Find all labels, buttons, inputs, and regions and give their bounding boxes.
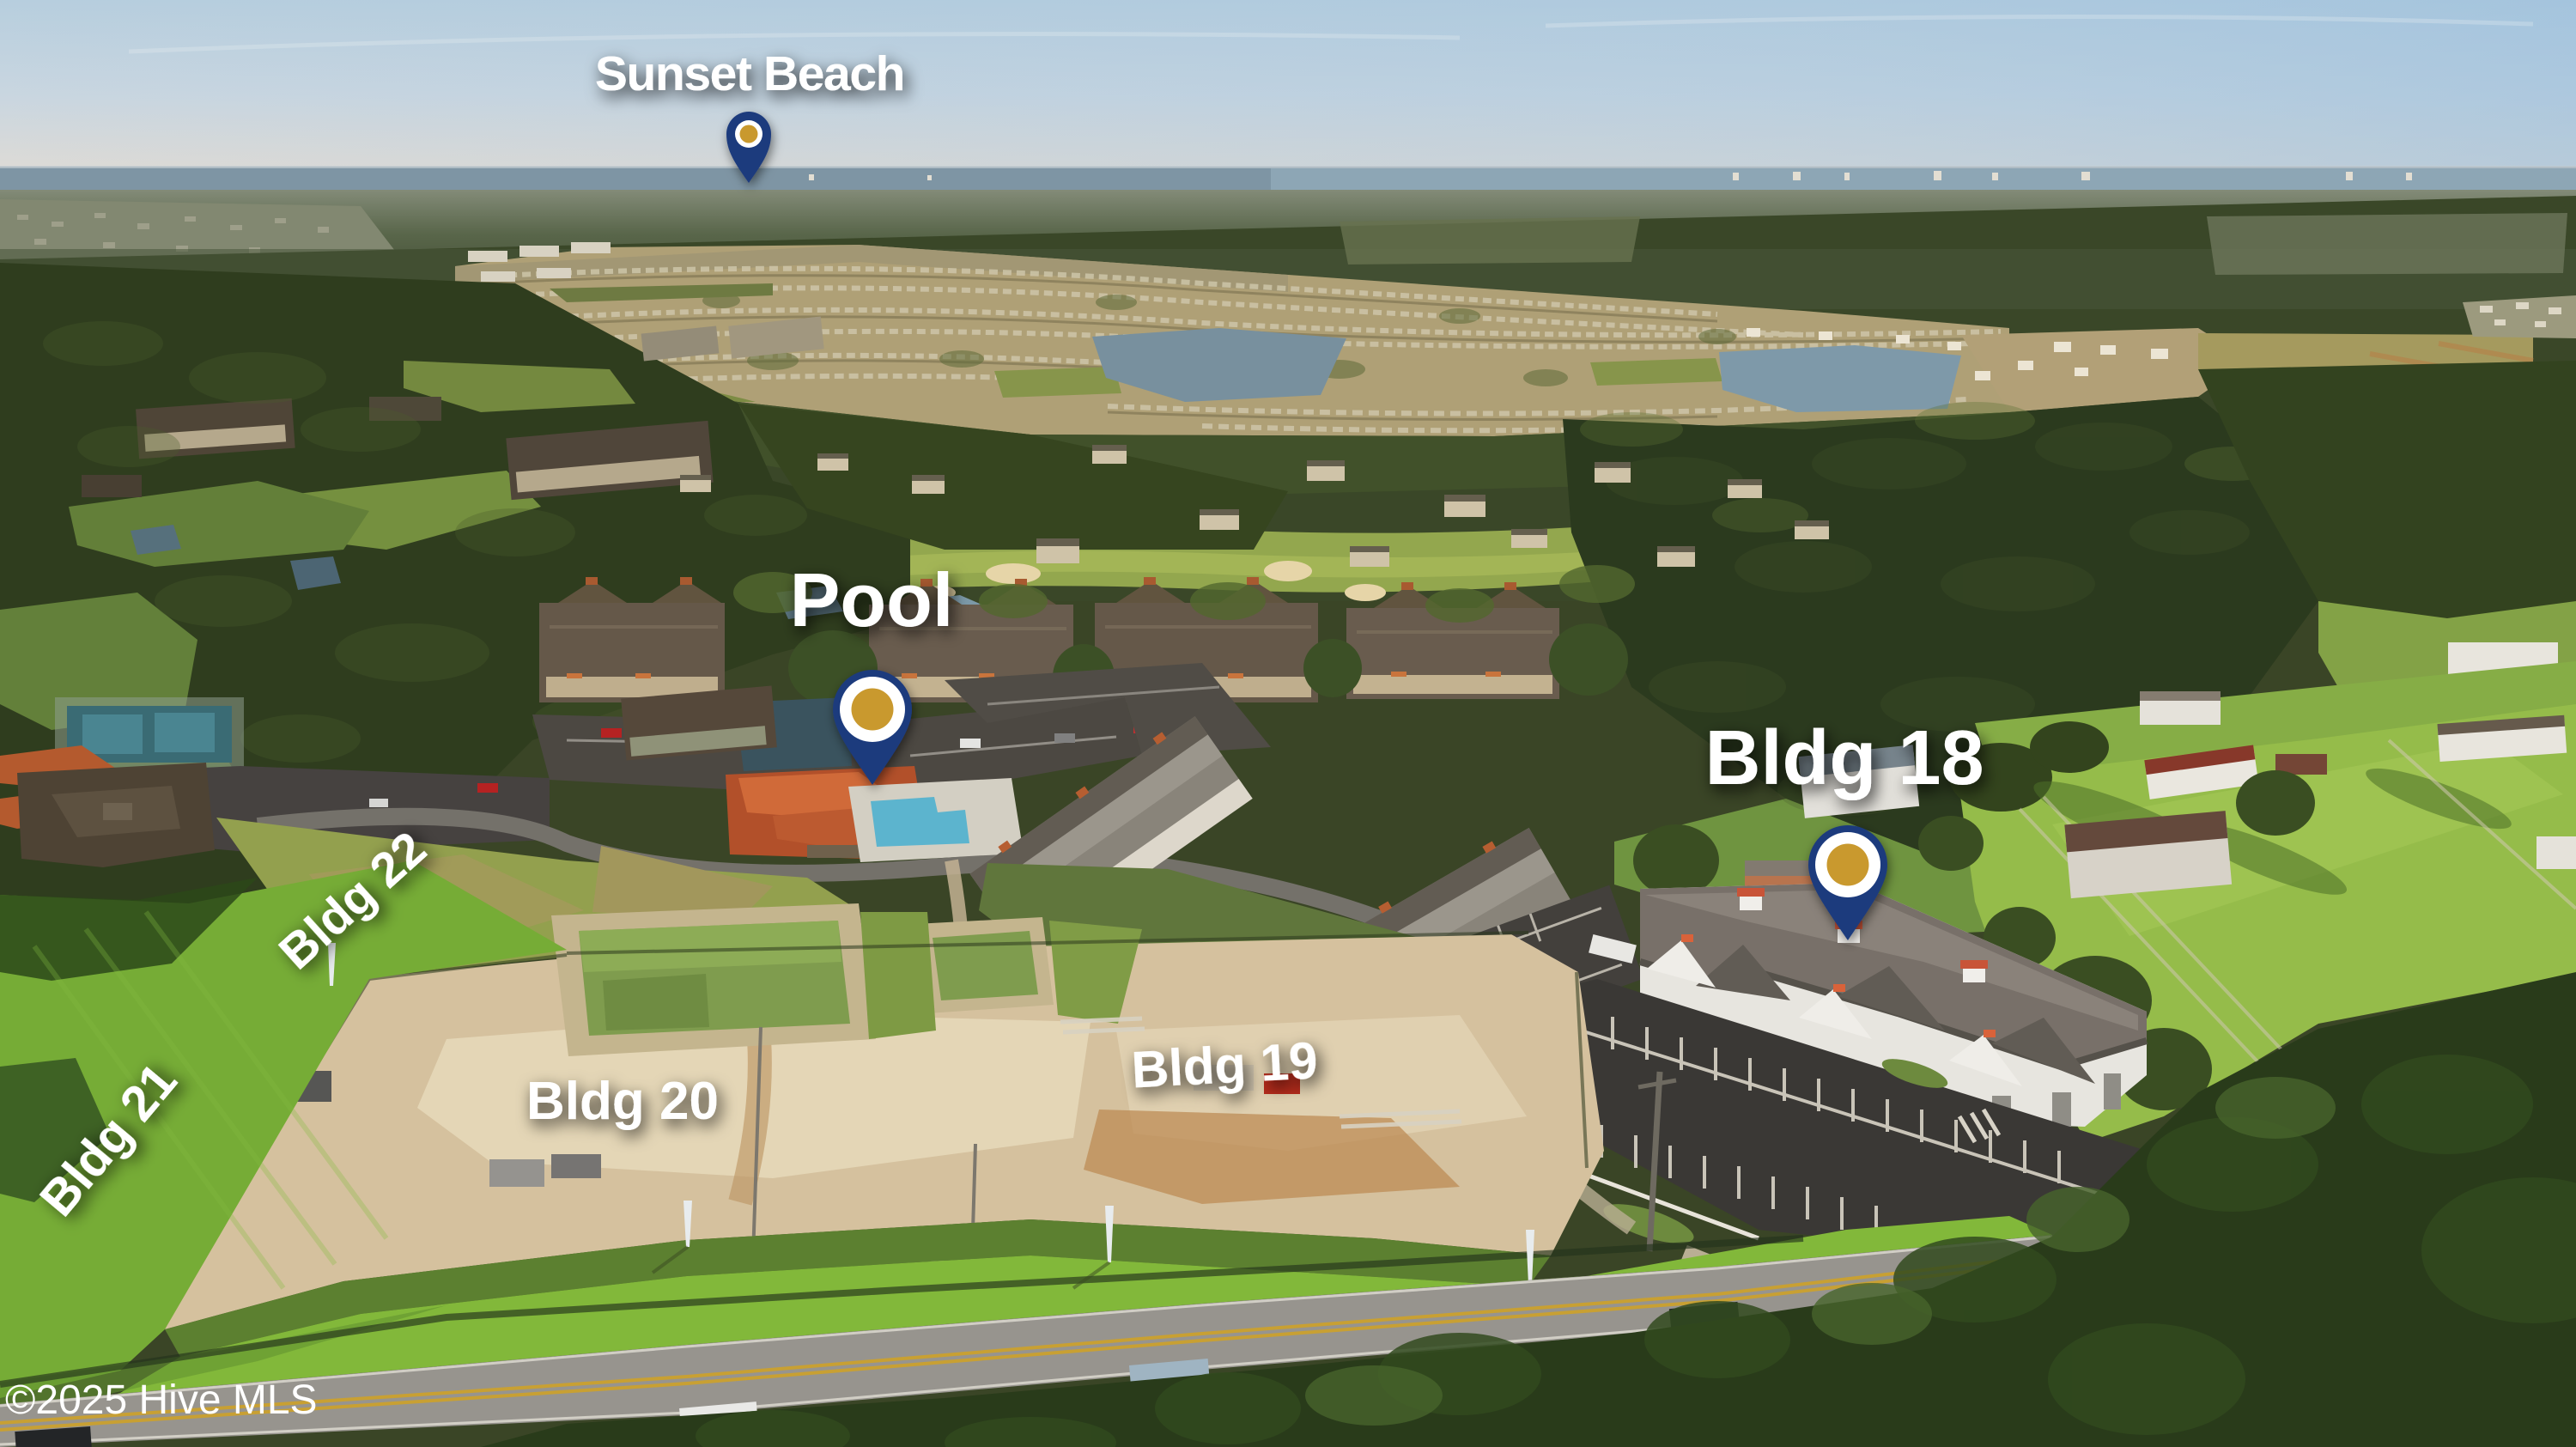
svg-text:©2025 Hive MLS: ©2025 Hive MLS <box>5 1377 318 1423</box>
svg-text:Bldg 20: Bldg 20 <box>526 1072 719 1131</box>
svg-text:Sunset Beach: Sunset Beach <box>595 46 904 101</box>
svg-text:Pool: Pool <box>790 557 954 642</box>
svg-text:Bldg 18: Bldg 18 <box>1704 715 1984 801</box>
svg-text:Bldg 19: Bldg 19 <box>1130 1031 1319 1098</box>
